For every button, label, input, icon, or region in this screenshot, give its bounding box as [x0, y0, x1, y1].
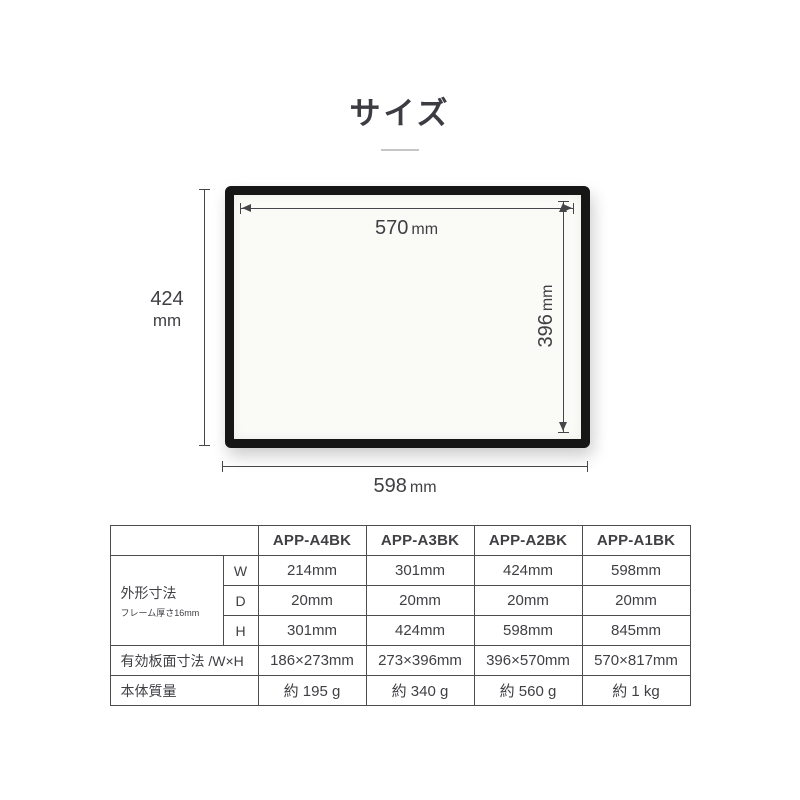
dimension-label-outer-height: 424 mm — [138, 287, 196, 331]
column-header-app-a1bk: APP-A1BK — [582, 526, 690, 556]
arrowhead-left-icon — [242, 204, 251, 212]
cell-h-a3: 424mm — [366, 616, 474, 646]
dimension-label-inner-width: 570mm — [240, 217, 573, 240]
dimension-line-outer-width — [222, 466, 588, 467]
cell-weight-a4: 約 195 g — [258, 676, 366, 706]
cell-board-a3: 273×396mm — [366, 646, 474, 676]
title-block: サイズ — [0, 0, 800, 151]
dimension-cap — [199, 445, 210, 446]
cell-board-a4: 186×273mm — [258, 646, 366, 676]
row-group-label-outer-dimensions: 外形寸法 フレーム厚さ16mm — [110, 556, 223, 646]
dimension-line-inner-height — [563, 201, 564, 433]
page-title: サイズ — [0, 88, 800, 133]
inner-width-value: 570 — [375, 217, 408, 239]
arrowhead-up-icon — [559, 203, 567, 212]
cell-h-a2: 598mm — [474, 616, 582, 646]
table-row-width: 外形寸法 フレーム厚さ16mm W 214mm 301mm 424mm 598m… — [110, 556, 690, 586]
row-label-board-size: 有効板面寸法 /W×H — [110, 646, 258, 676]
outer-width-value: 598 — [373, 475, 406, 497]
row-label-weight: 本体質量 — [110, 676, 258, 706]
frame-thickness-note: フレーム厚さ16mm — [121, 606, 221, 619]
cell-w-a2: 424mm — [474, 556, 582, 586]
sub-row-label-d: D — [223, 586, 258, 616]
dimension-line-outer-height — [204, 189, 205, 446]
product-size-diagram: 424 mm 598mm 570mm 396mm — [0, 151, 800, 519]
sub-row-label-w: W — [223, 556, 258, 586]
dimension-cap — [222, 461, 223, 472]
cell-w-a1: 598mm — [582, 556, 690, 586]
dimension-cap — [240, 203, 241, 214]
table-row-weight: 本体質量 約 195 g 約 340 g 約 560 g 約 1 kg — [110, 676, 690, 706]
inner-height-value: 396 — [535, 314, 557, 347]
cell-d-a3: 20mm — [366, 586, 474, 616]
dimension-cap — [558, 201, 569, 202]
spec-table-section: APP-A4BK APP-A3BK APP-A2BK APP-A1BK 外形寸法… — [0, 525, 800, 706]
outer-height-value: 424 — [150, 288, 183, 310]
outer-height-unit: mm — [138, 311, 196, 331]
table-row-board-size: 有効板面寸法 /W×H 186×273mm 273×396mm 396×570m… — [110, 646, 690, 676]
dimension-cap — [587, 461, 588, 472]
dimension-label-outer-width: 598mm — [222, 475, 588, 498]
cell-w-a3: 301mm — [366, 556, 474, 586]
cell-d-a2: 20mm — [474, 586, 582, 616]
dimension-cap — [558, 432, 569, 433]
inner-height-unit: mm — [539, 284, 556, 311]
cell-w-a4: 214mm — [258, 556, 366, 586]
spec-table-header-row: APP-A4BK APP-A3BK APP-A2BK APP-A1BK — [110, 526, 690, 556]
inner-width-unit: mm — [411, 221, 438, 238]
cell-weight-a3: 約 340 g — [366, 676, 474, 706]
cell-weight-a1: 約 1 kg — [582, 676, 690, 706]
cell-h-a1: 845mm — [582, 616, 690, 646]
column-header-app-a4bk: APP-A4BK — [258, 526, 366, 556]
dimension-cap — [199, 189, 210, 190]
cell-weight-a2: 約 560 g — [474, 676, 582, 706]
cell-d-a4: 20mm — [258, 586, 366, 616]
cell-board-a1: 570×817mm — [582, 646, 690, 676]
dimension-cap — [573, 203, 574, 214]
dimension-label-inner-height: 396mm — [535, 271, 557, 361]
cell-h-a4: 301mm — [258, 616, 366, 646]
cell-board-a2: 396×570mm — [474, 646, 582, 676]
spec-table: APP-A4BK APP-A3BK APP-A2BK APP-A1BK 外形寸法… — [110, 525, 691, 706]
arrowhead-down-icon — [559, 422, 567, 431]
sub-row-label-h: H — [223, 616, 258, 646]
spec-table-corner-cell — [110, 526, 258, 556]
outer-width-unit: mm — [410, 479, 437, 496]
cell-d-a1: 20mm — [582, 586, 690, 616]
column-header-app-a2bk: APP-A2BK — [474, 526, 582, 556]
column-header-app-a3bk: APP-A3BK — [366, 526, 474, 556]
dimension-line-inner-width — [241, 208, 573, 209]
outer-dimensions-label: 外形寸法 — [121, 585, 177, 601]
